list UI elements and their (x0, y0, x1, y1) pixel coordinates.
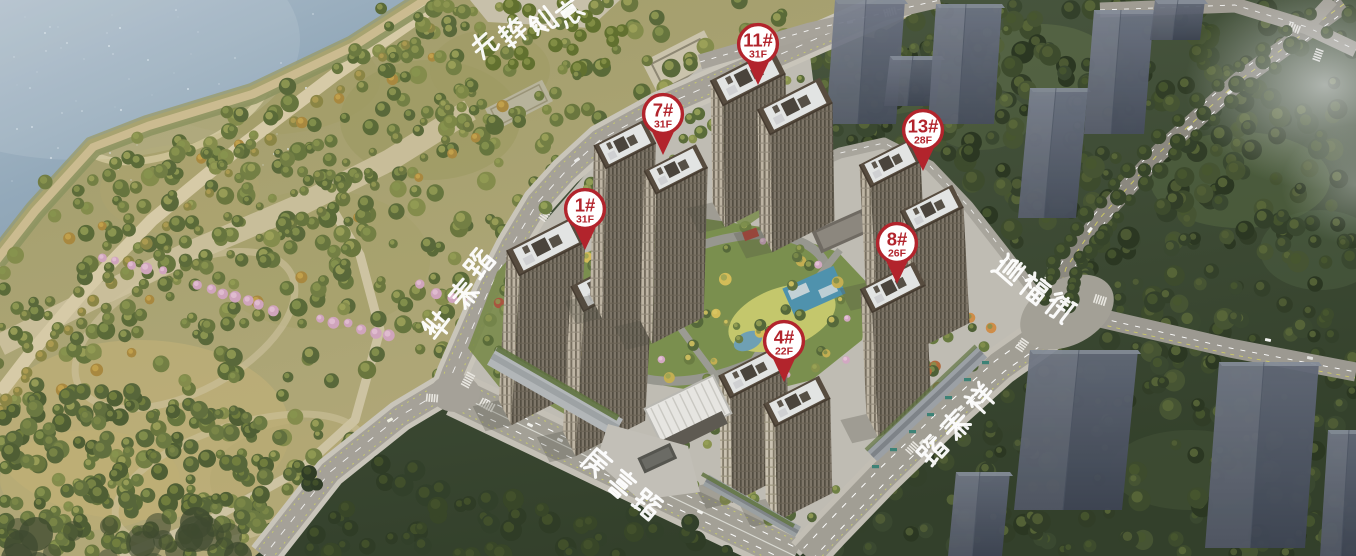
svg-text:31F: 31F (654, 119, 673, 131)
svg-text:7#: 7# (653, 100, 674, 121)
svg-text:28F: 28F (914, 135, 933, 147)
svg-text:26F: 26F (888, 248, 907, 260)
svg-text:13#: 13# (908, 116, 939, 137)
svg-text:4#: 4# (774, 327, 795, 348)
svg-text:31F: 31F (749, 49, 768, 61)
svg-text:22F: 22F (775, 346, 794, 358)
svg-text:11#: 11# (743, 30, 773, 51)
svg-text:1#: 1# (575, 195, 596, 216)
svg-text:8#: 8# (887, 229, 908, 250)
svg-text:31F: 31F (576, 214, 595, 226)
